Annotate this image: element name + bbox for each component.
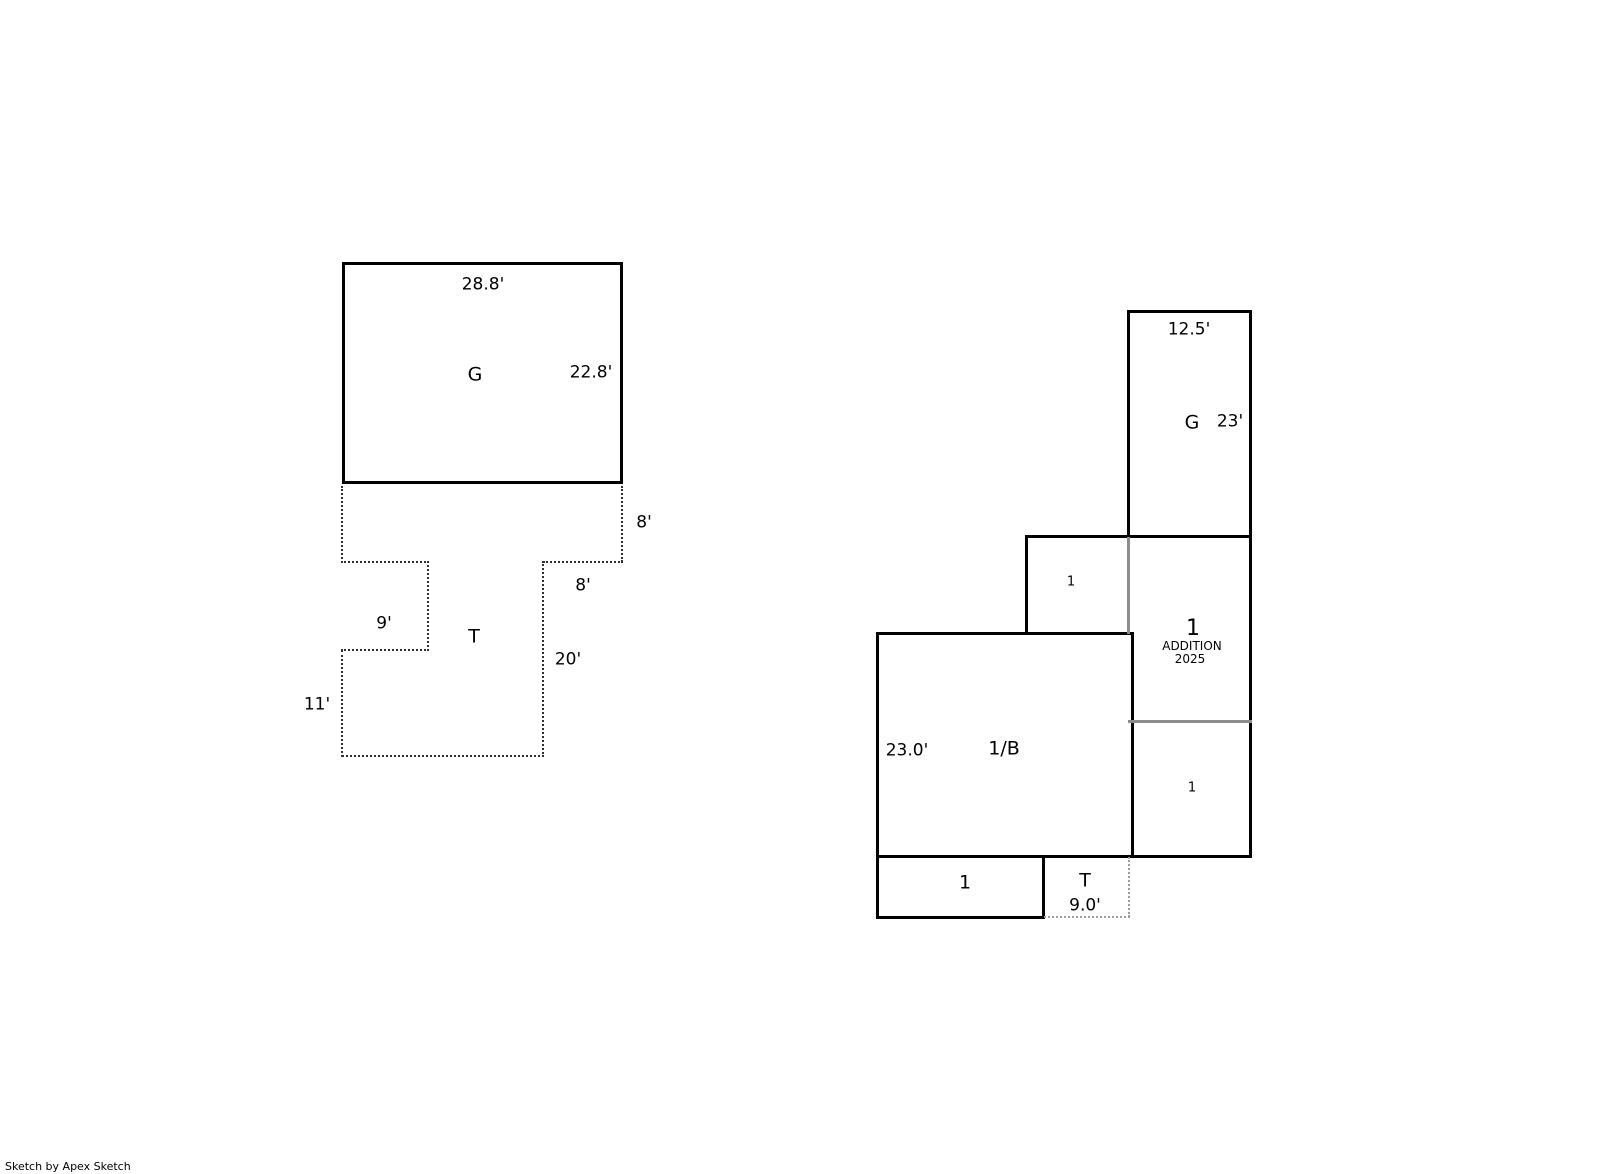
right-main-right-edge bbox=[1131, 632, 1134, 858]
right-bottom-story-label: 1 bbox=[959, 874, 971, 893]
right-addition-bottom-overlap-edge bbox=[1128, 720, 1252, 723]
right-terrace-bottom-edge bbox=[1044, 916, 1130, 918]
right-terrace-width-label: 9.0' bbox=[1069, 898, 1101, 915]
right-garage-top-edge bbox=[1128, 310, 1252, 313]
right-main-depth-label: 23.0' bbox=[886, 743, 929, 760]
right-addition-year-label: 2025 bbox=[1175, 653, 1206, 665]
right-garage-left-edge bbox=[1127, 310, 1130, 538]
left-terrace-notch-right-edge bbox=[427, 561, 429, 651]
right-addition-text-label: ADDITION bbox=[1162, 640, 1222, 652]
right-garage-width-label: 12.5' bbox=[1168, 322, 1211, 339]
left-terrace-inner-edge bbox=[543, 561, 623, 563]
right-main-bottom-edge bbox=[876, 855, 1252, 858]
left-terrace-notch-top-edge bbox=[341, 561, 429, 563]
left-terrace-notch-dim-label: 9' bbox=[376, 616, 392, 633]
apex-sketch-page: 28.8' G 22.8' 8' 8' 20' T 9' 11' 12.5' G… bbox=[0, 0, 1601, 1174]
left-terrace-left-dim-label: 11' bbox=[304, 697, 330, 714]
left-terrace-notch-bottom-edge bbox=[341, 649, 429, 651]
left-terrace-left-lower-edge bbox=[341, 650, 343, 757]
right-garage-depth-label: 23' bbox=[1217, 414, 1243, 431]
right-main-left-edge bbox=[876, 632, 879, 919]
left-terrace-inner-dim-label: 8' bbox=[575, 578, 591, 595]
right-main-top-edge bbox=[876, 632, 1134, 635]
left-terrace-stem-right-edge bbox=[542, 561, 544, 757]
left-terrace-left-upper-edge bbox=[341, 486, 343, 563]
right-bottom-story-bottom-edge bbox=[876, 916, 1044, 919]
right-addition-left-overlap-edge bbox=[1127, 537, 1130, 634]
left-garage-area-label: G bbox=[468, 366, 483, 385]
right-garage-area-label: G bbox=[1185, 414, 1200, 433]
left-terrace-right-edge bbox=[621, 486, 623, 562]
right-upper-story-left-edge bbox=[1025, 535, 1028, 635]
right-outer-right-edge bbox=[1249, 310, 1252, 858]
right-terrace-area-label: T bbox=[1079, 872, 1091, 891]
left-terrace-stem-dim-label: 20' bbox=[555, 652, 581, 669]
right-addition-story-label: 1 bbox=[1186, 618, 1200, 640]
right-main-area-label: 1/B bbox=[988, 740, 1020, 759]
left-garage-width-label: 28.8' bbox=[462, 277, 505, 294]
right-right-story-label: 1 bbox=[1188, 782, 1196, 795]
right-upper-story-label: 1 bbox=[1067, 576, 1075, 589]
left-terrace-area-label: T bbox=[468, 628, 480, 647]
sketch-credit: Sketch by Apex Sketch bbox=[5, 1160, 131, 1173]
left-terrace-bottom-edge bbox=[342, 755, 544, 757]
right-garage-bottom-edge bbox=[1026, 535, 1252, 538]
left-terrace-right-dim-label: 8' bbox=[636, 515, 652, 532]
right-bottom-divider-edge bbox=[1042, 855, 1045, 919]
left-garage-depth-label: 22.8' bbox=[570, 365, 613, 382]
right-terrace-right-edge bbox=[1128, 857, 1130, 917]
